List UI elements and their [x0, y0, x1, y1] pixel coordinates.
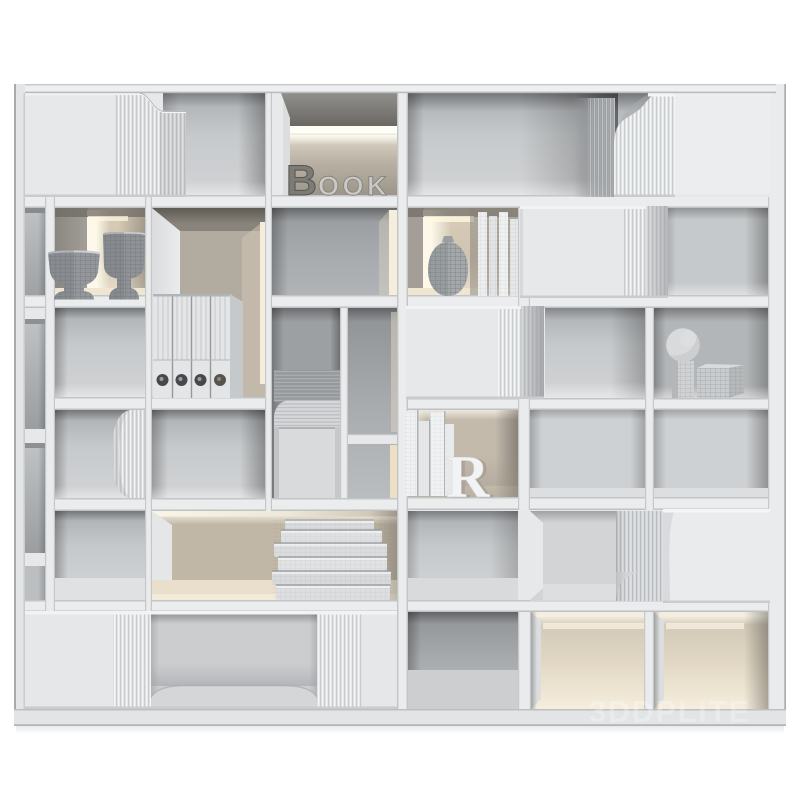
svg-text:3DDPLITE: 3DDPLITE	[589, 694, 751, 729]
svg-text:B: B	[286, 157, 317, 205]
svg-text:R: R	[446, 444, 490, 510]
svg-text:OOK: OOK	[318, 171, 390, 201]
